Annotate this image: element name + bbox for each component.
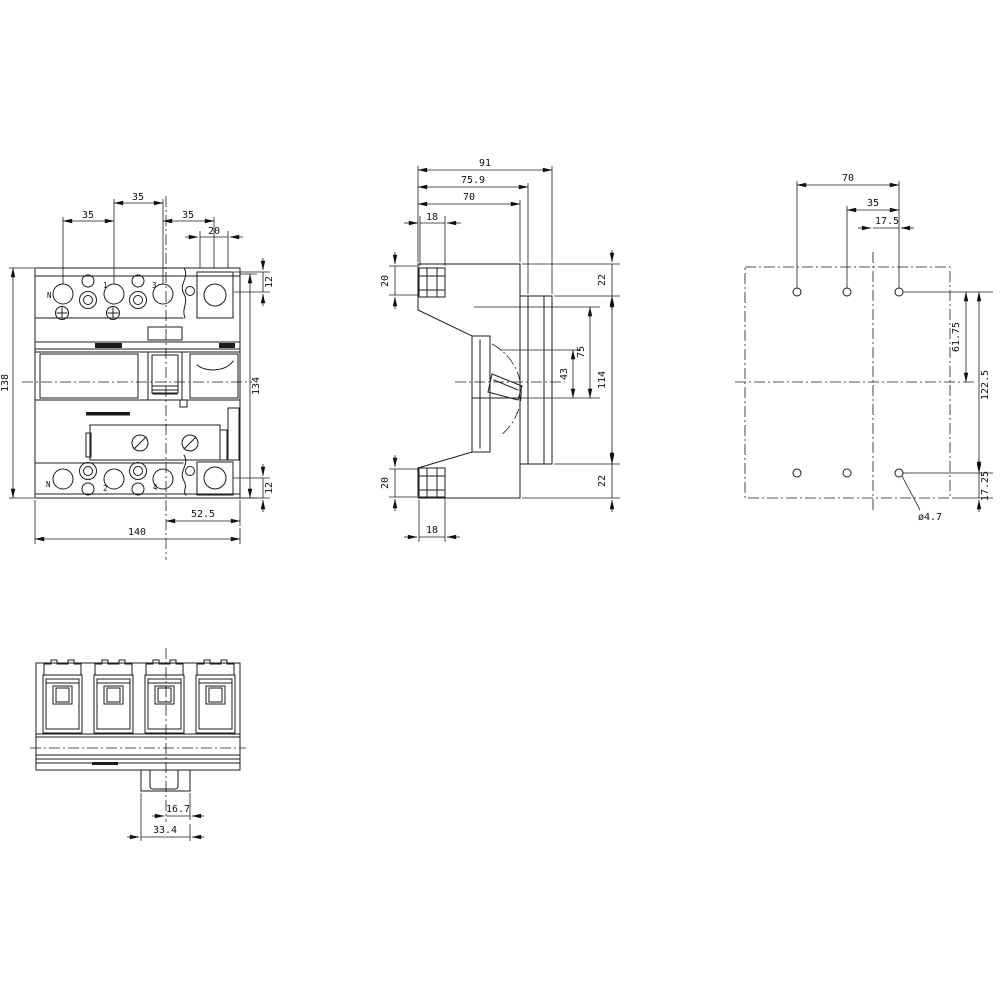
dim-rear-total: 122.5: [903, 292, 993, 473]
rail-latch-mark: [92, 762, 118, 765]
bottom-terminal-blocks: [43, 660, 235, 733]
dim-value: 35: [82, 210, 94, 221]
dim-value: 35: [182, 210, 194, 221]
dim-value: 20: [380, 275, 391, 287]
bottom-view: 16.7 33.4: [30, 648, 246, 841]
dim-value: 91: [479, 158, 491, 169]
dim-rear-hole-offset: 17.5: [858, 216, 914, 228]
terminal-label-4: 4: [153, 483, 158, 492]
test-button[interactable]: [180, 400, 187, 407]
dim-rear-upper: 61.75: [903, 292, 993, 382]
dim-value: 20: [208, 226, 220, 237]
keyhole-slot: [80, 463, 147, 496]
dim-bottom-slot: 33.4: [127, 793, 204, 841]
dim-value: 70: [463, 192, 475, 203]
dim-front-pitch-c: 35: [163, 210, 214, 268]
dim-value: 33.4: [153, 825, 177, 836]
aux-terminal-box-bottom: [197, 462, 233, 495]
dim-value: 140: [128, 527, 146, 538]
dim-side-foot-bot-w: 18: [404, 498, 460, 542]
hole-dia-label: ø4.7: [918, 512, 942, 523]
dim-front-pitch-a: 35: [63, 199, 114, 284]
dim-value: 138: [0, 374, 11, 392]
side-rear-bracket: [520, 296, 552, 464]
dim-value: 61.75: [951, 322, 962, 352]
terminal-block: [196, 660, 235, 733]
dim-value: 20: [380, 477, 391, 489]
front-centerlines: [22, 196, 252, 560]
dim-value: 35: [132, 192, 144, 203]
dim-value: 17.5: [875, 216, 899, 227]
dim-side-mid-b: 43: [500, 350, 581, 398]
side-view: 91 75.9 70 18 20: [380, 158, 620, 542]
dim-side-foot-top-w: 18: [404, 212, 461, 266]
dim-value: 12: [264, 276, 275, 288]
side-foot-top: [419, 268, 445, 297]
dim-value: 43: [559, 368, 570, 380]
dim-value: 18: [426, 525, 438, 536]
model-mark-block: [219, 343, 235, 348]
dim-value: 70: [842, 173, 854, 184]
terminal-label-1: 1: [103, 281, 108, 290]
right-recess: [190, 354, 238, 398]
terminal-label-n-bot: N: [46, 480, 51, 489]
break-line-bottom: [182, 455, 186, 495]
terminal-block: [145, 660, 184, 733]
vent-slot: [148, 327, 182, 340]
terminal-block: [94, 660, 133, 733]
dim-side-bot-rear: 22: [522, 450, 620, 512]
dim-front-height-right: 134: [240, 274, 262, 498]
instruction-label-block: [86, 412, 130, 416]
drawing-canvas: N 1 3: [0, 0, 1000, 1000]
dim-value: 75: [576, 346, 587, 358]
dim-value: 16.7: [166, 804, 190, 815]
din-rail-slider[interactable]: [141, 770, 190, 791]
dim-side-depth-body: 70: [418, 192, 520, 262]
dim-front-pitch-b: 35: [114, 192, 163, 284]
dim-side-foot-bot-h: 20: [380, 455, 419, 511]
dim-front-offset: 52.5: [166, 500, 240, 526]
dim-bottom-half: 16.7: [152, 793, 204, 820]
front-terminals-top: N 1 3: [47, 268, 233, 370]
front-terminals-bottom: N 2 4: [46, 455, 233, 495]
dim-value: 35: [867, 198, 879, 209]
dim-rear-hole-pitch: 70: [797, 173, 899, 288]
brand-mark-block: [95, 343, 122, 348]
dim-rear-lower: 17.25: [952, 459, 993, 512]
terminal-label-n-top: N: [47, 291, 52, 300]
bottom-body-bands: [36, 734, 240, 765]
dim-value: 12: [264, 482, 275, 494]
terminal-label-3: 3: [152, 281, 157, 290]
toggle-handle[interactable]: [148, 352, 182, 400]
terminal-label-2: 2: [103, 484, 108, 493]
dim-side-foot-top-h: 20: [380, 252, 419, 309]
rear-view: 70 35 17.5 61.75 122.5 17.25: [735, 173, 993, 523]
side-profile: [418, 264, 520, 498]
mounting-holes: [793, 288, 903, 477]
dim-value: 22: [597, 274, 608, 286]
front-view: N 1 3: [0, 192, 275, 560]
aux-terminal-box-top: [197, 272, 233, 370]
dim-front-bot-right: 12: [233, 464, 275, 512]
dim-value: 114: [597, 371, 608, 389]
side-foot-bottom: [419, 468, 445, 497]
side-handle[interactable]: [488, 344, 522, 436]
dim-value: 75.9: [461, 175, 485, 186]
dim-side-top-rear: 22: [522, 250, 620, 310]
dim-value: 122.5: [980, 370, 991, 400]
slotted-screw-icon: [132, 435, 198, 451]
left-recess: [40, 354, 138, 398]
dim-front-height-left: 138: [0, 268, 34, 498]
dimension-drawing: N 1 3: [0, 0, 1000, 1000]
dim-side-mid-a: 75: [474, 307, 600, 398]
dim-value: 18: [426, 212, 438, 223]
terminal-block: [43, 660, 82, 733]
dim-value: 22: [597, 475, 608, 487]
hole-diameter-callout: ø4.7: [902, 476, 942, 523]
dim-value: 52.5: [191, 509, 215, 520]
front-accessory-cover: [86, 408, 239, 460]
dim-value: 134: [251, 377, 262, 395]
rear-phantom-outline: [745, 267, 950, 498]
front-mid-section: [40, 327, 238, 416]
dim-front-width: 140: [35, 500, 240, 544]
dim-value: 17.25: [980, 471, 991, 501]
